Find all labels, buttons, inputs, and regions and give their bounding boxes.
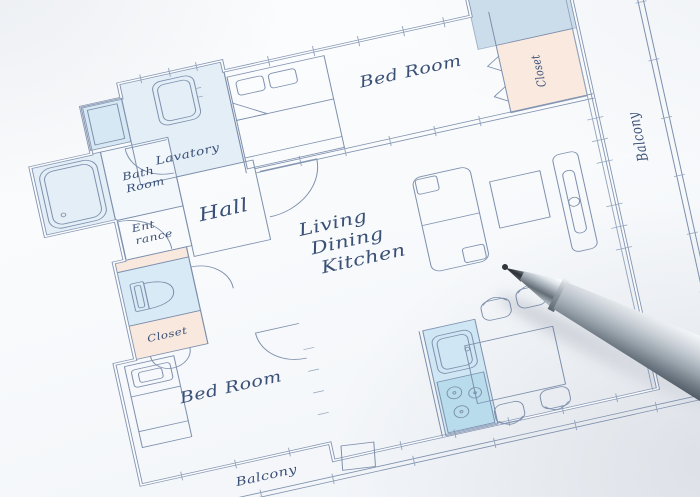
coffee-table xyxy=(490,171,551,228)
tv-board xyxy=(552,150,599,252)
photo-of-floor-plan: Bed Room Closet Lavatory Bath Room Ent r… xyxy=(0,0,700,497)
sofa xyxy=(412,166,490,273)
double-bed xyxy=(227,56,344,169)
floor-plan-sheet: Bed Room Closet Lavatory Bath Room Ent r… xyxy=(0,0,700,497)
